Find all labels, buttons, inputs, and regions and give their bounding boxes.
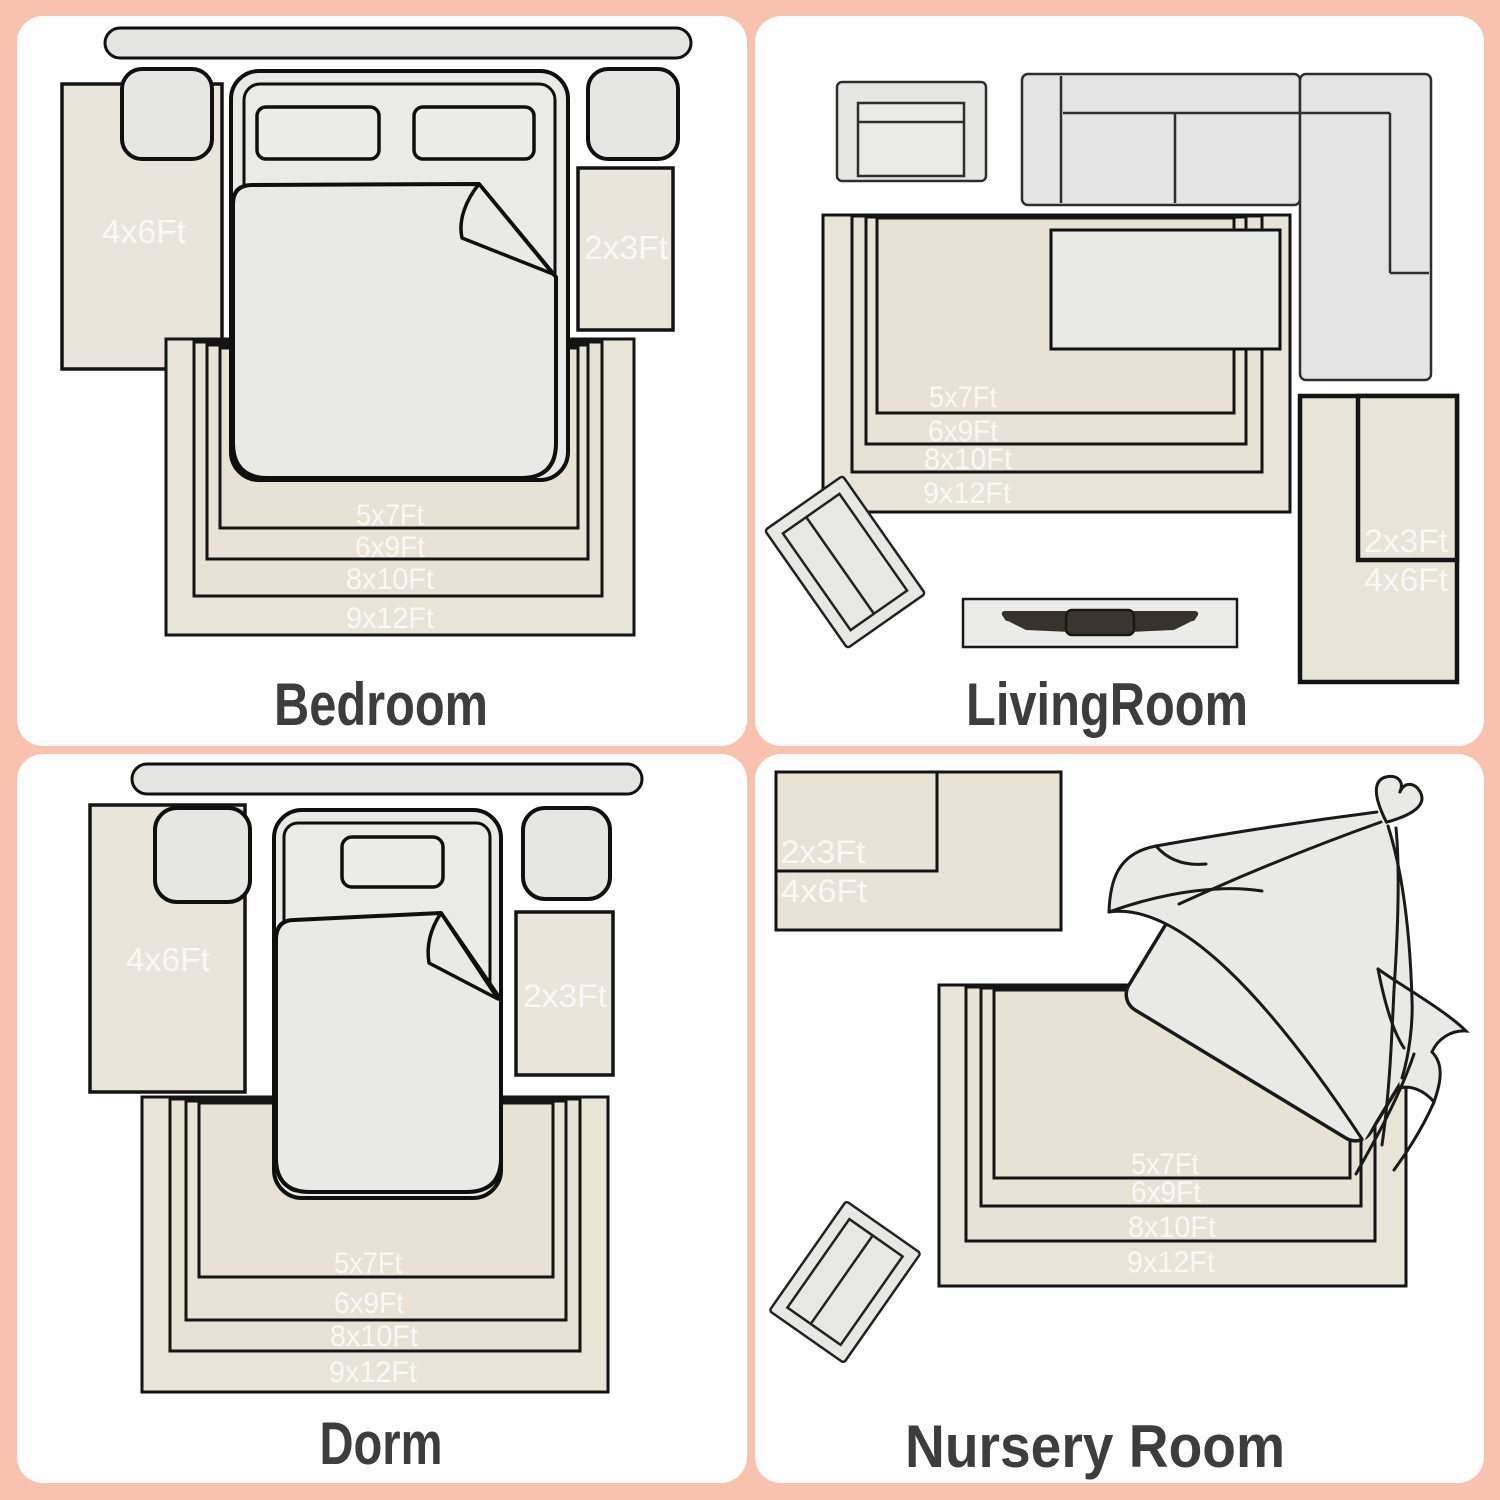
svg-text:6x9Ft: 6x9Ft xyxy=(334,1287,405,1320)
svg-text:6x9Ft: 6x9Ft xyxy=(1131,1176,1202,1209)
svg-text:Nursery Room: Nursery Room xyxy=(905,1413,1285,1480)
svg-text:9x12Ft: 9x12Ft xyxy=(923,477,1012,510)
svg-text:5x7Ft: 5x7Ft xyxy=(929,381,998,414)
svg-text:5x7Ft: 5x7Ft xyxy=(334,1247,403,1280)
svg-text:2x3Ft: 2x3Ft xyxy=(781,834,866,870)
svg-text:4x6Ft: 4x6Ft xyxy=(102,213,186,250)
svg-text:2x3Ft: 2x3Ft xyxy=(1364,523,1448,559)
svg-text:4x6Ft: 4x6Ft xyxy=(126,941,210,978)
svg-text:6x9Ft: 6x9Ft xyxy=(355,531,426,564)
svg-text:9x12Ft: 9x12Ft xyxy=(329,1356,418,1389)
svg-text:5x7Ft: 5x7Ft xyxy=(356,499,425,532)
svg-text:4x6Ft: 4x6Ft xyxy=(1364,562,1448,598)
svg-text:8x10Ft: 8x10Ft xyxy=(1128,1211,1217,1244)
svg-text:4x6Ft: 4x6Ft xyxy=(781,873,867,909)
svg-text:9x12Ft: 9x12Ft xyxy=(346,602,435,635)
svg-text:Bedroom: Bedroom xyxy=(274,671,488,738)
svg-text:9x12Ft: 9x12Ft xyxy=(1127,1246,1216,1279)
svg-text:8x10Ft: 8x10Ft xyxy=(346,563,435,596)
svg-text:Dorm: Dorm xyxy=(320,1410,443,1477)
svg-text:2x3Ft: 2x3Ft xyxy=(523,978,607,1014)
svg-text:8x10Ft: 8x10Ft xyxy=(330,1320,419,1353)
svg-text:LivingRoom: LivingRoom xyxy=(966,671,1248,738)
svg-text:2x3Ft: 2x3Ft xyxy=(584,229,668,266)
svg-text:8x10Ft: 8x10Ft xyxy=(924,443,1013,476)
